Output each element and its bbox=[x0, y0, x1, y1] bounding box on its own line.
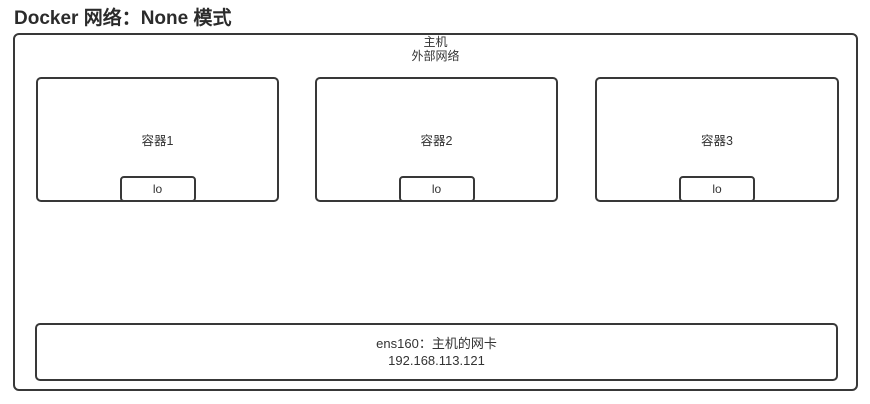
external-network-label: 外部网络 bbox=[13, 49, 858, 63]
container-2-lo-label: lo bbox=[432, 182, 441, 196]
nic-name: ens160：主机的网卡 bbox=[376, 335, 497, 352]
nic-box: ens160：主机的网卡 192.168.113.121 bbox=[35, 323, 838, 381]
nic-ip-address: 192.168.113.121 bbox=[388, 352, 485, 369]
diagram-canvas: Docker 网络：None 模式 主机 外部网络 容器1 lo 容器2 lo … bbox=[0, 0, 870, 404]
page-title: Docker 网络：None 模式 bbox=[14, 3, 231, 30]
container-2-lo-interface-box: lo bbox=[399, 176, 475, 202]
container-3-box: 容器3 lo bbox=[595, 77, 839, 202]
container-1-lo-interface-box: lo bbox=[120, 176, 196, 202]
container-3-lo-label: lo bbox=[712, 182, 721, 196]
host-label: 主机 bbox=[13, 35, 858, 49]
container-2-box: 容器2 lo bbox=[315, 77, 558, 202]
container-1-box: 容器1 lo bbox=[36, 77, 279, 202]
container-3-lo-interface-box: lo bbox=[679, 176, 755, 202]
container-1-lo-label: lo bbox=[153, 182, 162, 196]
host-header: 主机 外部网络 bbox=[13, 35, 858, 63]
